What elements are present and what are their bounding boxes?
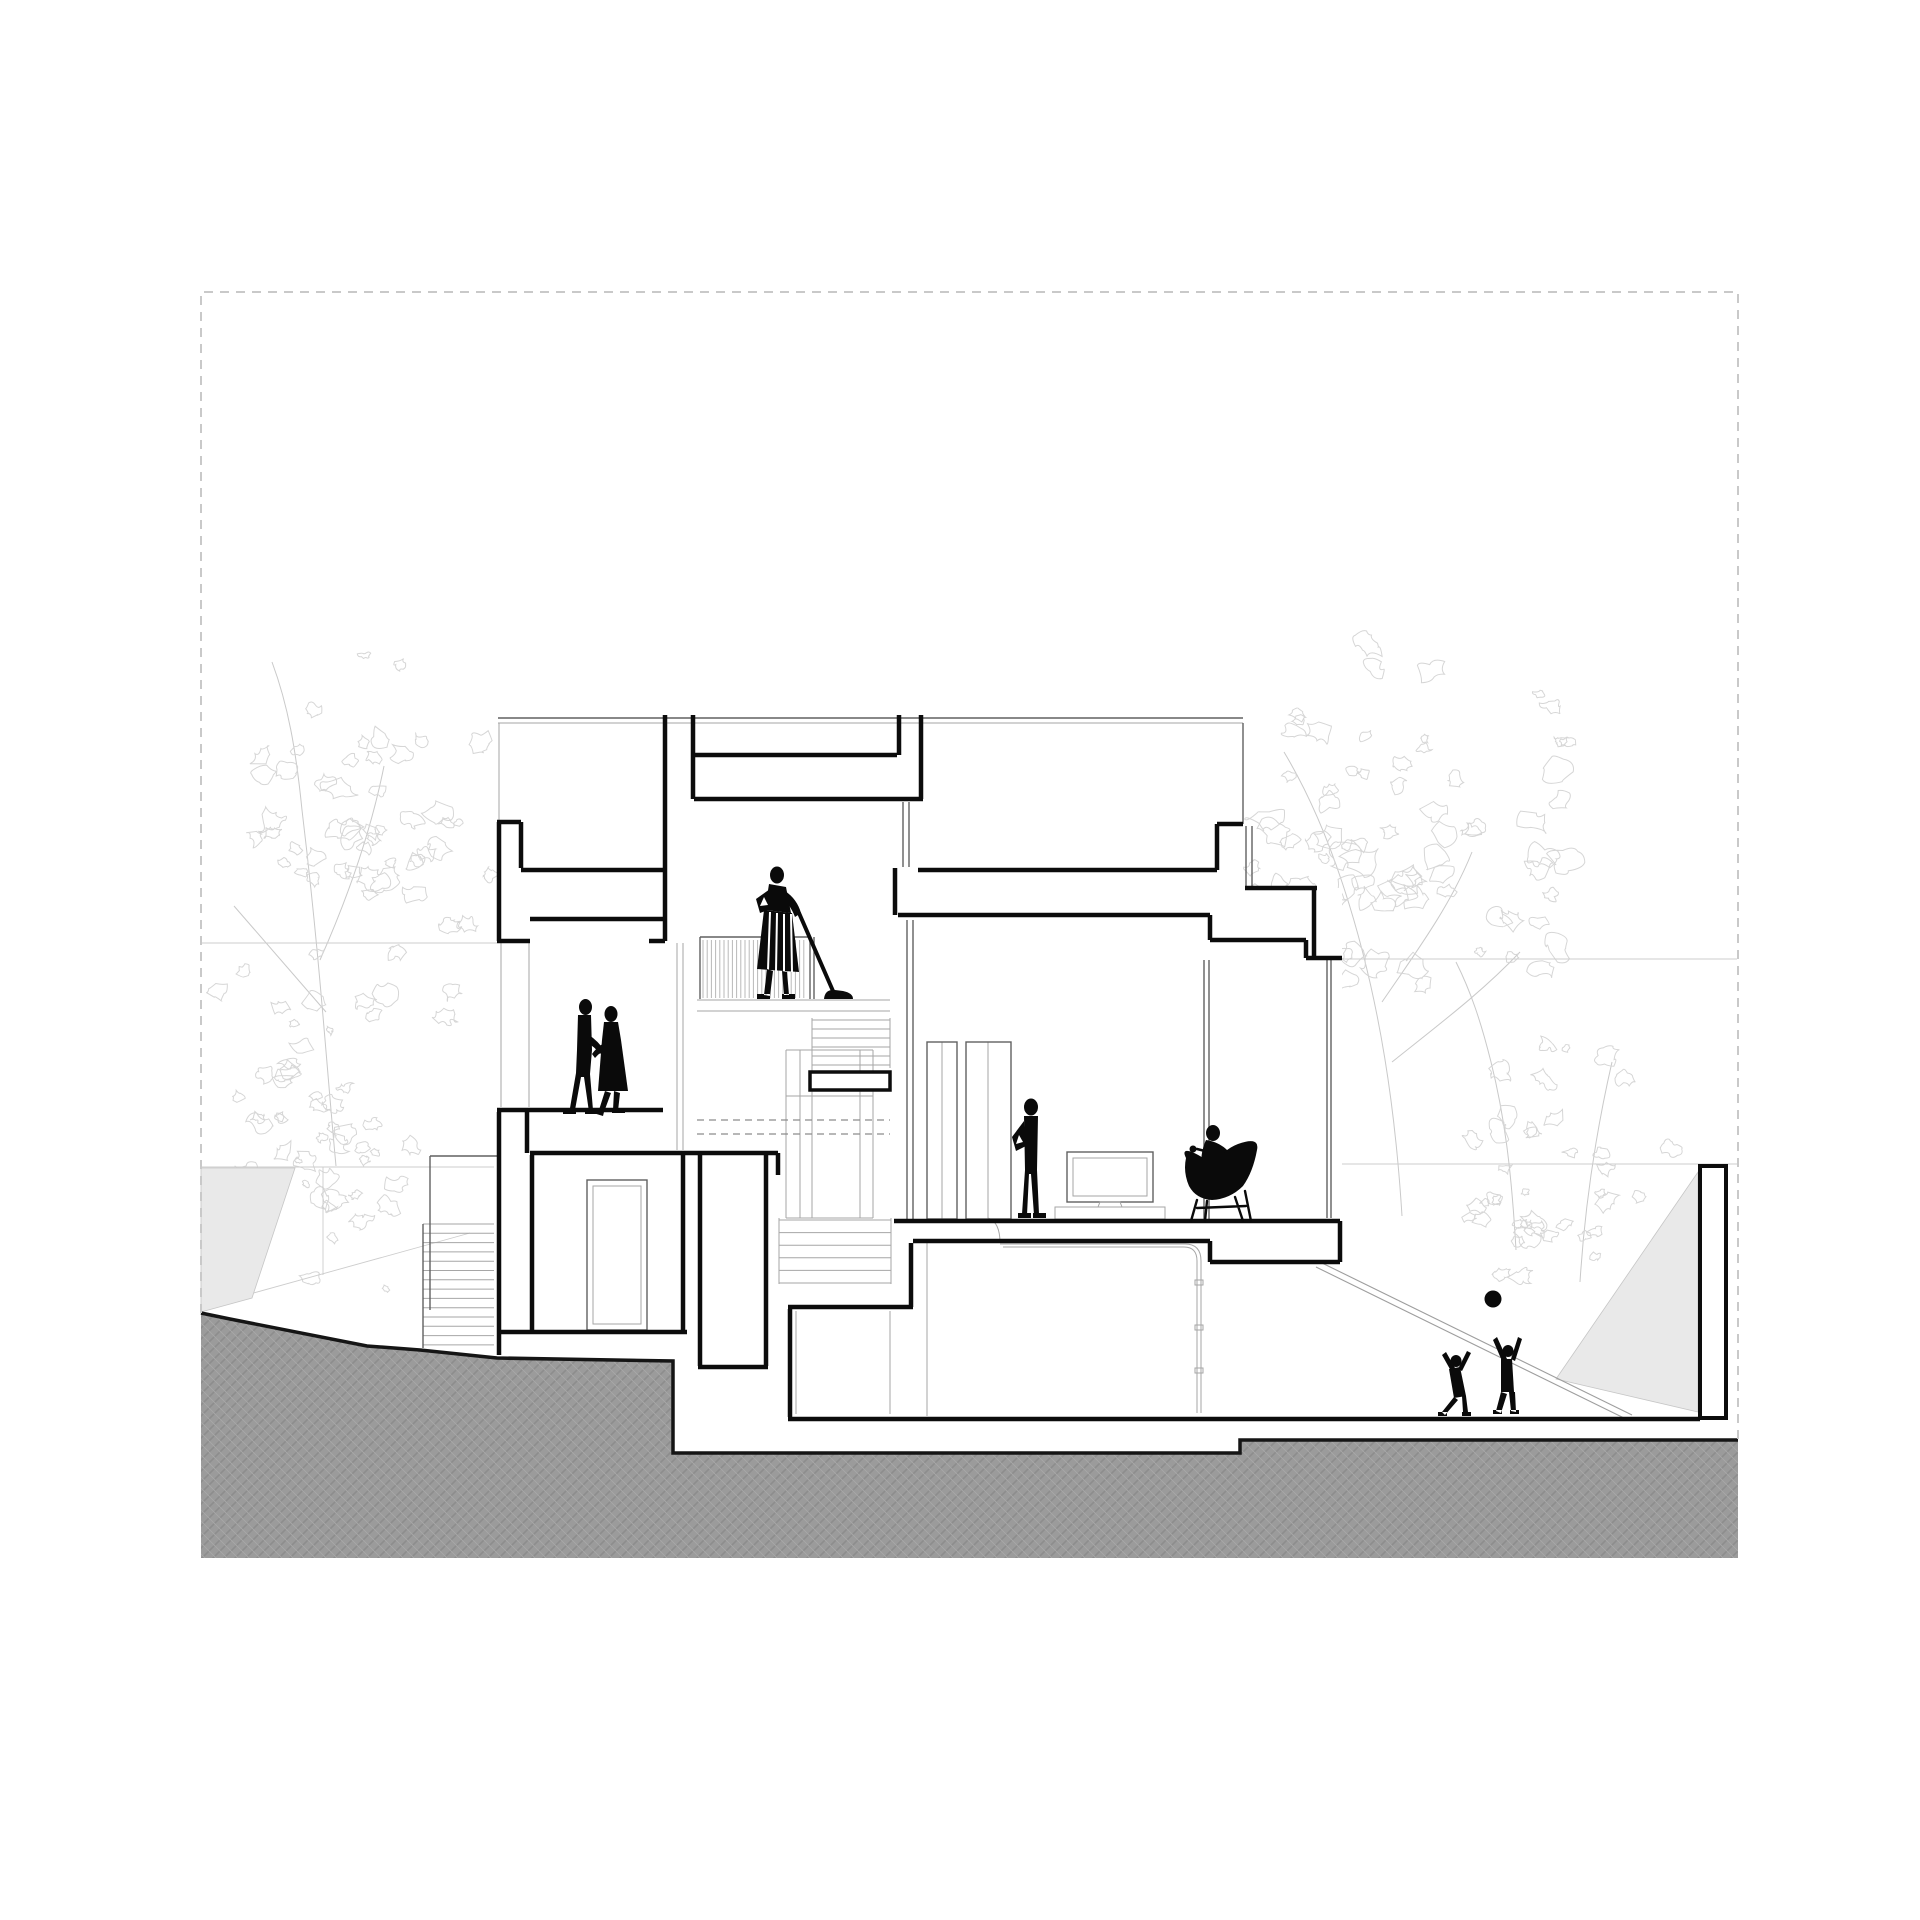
standing-person-head <box>1024 1099 1038 1116</box>
child-right-legs <box>1493 1392 1519 1414</box>
tree-trunk <box>234 906 326 1012</box>
tree-trunk <box>1580 1062 1612 1282</box>
child-right-body <box>1501 1359 1514 1392</box>
ball <box>1485 1291 1502 1308</box>
dancing-woman-head <box>605 1006 618 1022</box>
landing-edge-beam <box>810 1072 890 1090</box>
ramp-side-wall-left <box>201 1168 295 1312</box>
vacuum-person-head <box>770 867 784 884</box>
tree-trunk <box>1382 852 1472 1002</box>
drawing-sheet <box>0 0 1920 1920</box>
ramp-side-wall-right <box>1556 1172 1698 1412</box>
building-mass <box>788 1221 1240 1419</box>
tree-left-canopy <box>206 652 498 1026</box>
boundary-wall <box>1700 1166 1726 1418</box>
tree-trunk <box>1456 962 1516 1250</box>
tree-trunk <box>1392 952 1520 1062</box>
outdoor-stair-steps <box>423 1224 494 1345</box>
child-left-legs <box>1438 1396 1471 1416</box>
section-drawing <box>0 0 1920 1920</box>
dancing-man-head <box>579 999 592 1015</box>
seated-person-head <box>1206 1125 1220 1141</box>
tree-trunk <box>272 662 336 1166</box>
child-left-body <box>1449 1367 1466 1398</box>
building-mass <box>918 715 1243 888</box>
scene-root <box>201 292 1738 1558</box>
seated-person-cup <box>1190 1146 1197 1153</box>
